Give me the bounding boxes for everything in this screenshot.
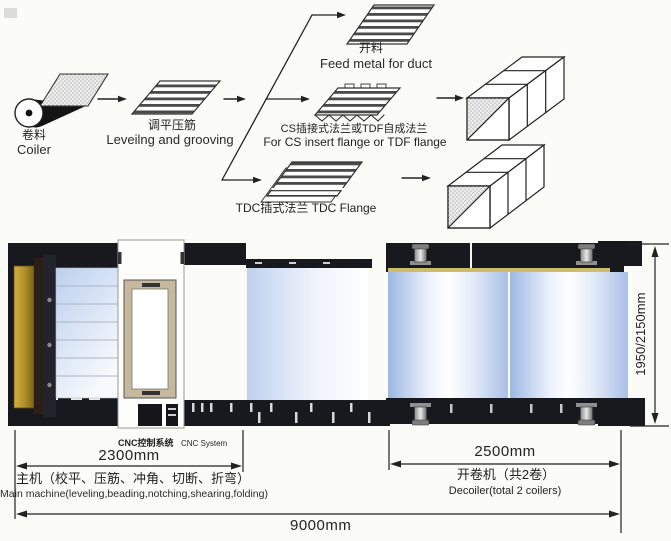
decoiler-coil-1 xyxy=(388,272,508,398)
decoiler-label-en: Decoiler(total 2 coilers) xyxy=(449,485,561,497)
mid-roll-panel xyxy=(247,268,368,400)
coiler-label-en: Coiler xyxy=(17,143,51,157)
scan-artifact xyxy=(4,8,17,18)
leveling-label-zh: 调平压筋 xyxy=(148,119,196,132)
dimension-2500mm: 2500mm xyxy=(474,444,535,461)
cs-flange-label-en: For CS insert flange or TDF flange xyxy=(263,136,446,149)
cnc-control-unit xyxy=(118,240,184,428)
left-table-panel xyxy=(56,268,118,398)
gold-edge-strip xyxy=(388,268,610,272)
flow-arrow-duct-2 xyxy=(402,175,431,181)
cs-flange-label-zh: CS插接式法兰或TDF自成法兰 xyxy=(281,123,428,135)
main-machine-label-en: Main machine(leveling,beading,notching,s… xyxy=(0,489,268,501)
flow-arrow-2 xyxy=(224,96,246,102)
cs-flange-sheet-graphic xyxy=(315,84,400,121)
dimension-height-1950-2150mm: 1950/2150mm xyxy=(634,269,648,399)
coiler-graphic xyxy=(15,74,108,127)
tdc-flange-sheet-graphic xyxy=(261,162,362,202)
decoiler-label-zh: 开卷机（共2卷） xyxy=(457,468,555,482)
flow-arrow-duct-1 xyxy=(437,95,464,101)
cnc-system-label-en: CNC System xyxy=(181,439,227,448)
frame-seam xyxy=(470,243,472,272)
brochure-diagram-page: 卷料 Coiler 调平压筋 Leveilng and grooving 开料 … xyxy=(0,0,671,541)
flow-arrow-1 xyxy=(98,96,127,102)
process-flow-diagram xyxy=(15,5,564,228)
coiler-label-zh: 卷料 xyxy=(22,129,46,142)
duct-assembly-1 xyxy=(467,57,564,140)
bolt-column xyxy=(43,255,56,417)
feed-label-en: Feed metal for duct xyxy=(320,57,432,71)
decoiler-coil-2 xyxy=(510,272,628,398)
duct-assembly-2 xyxy=(448,145,544,228)
feed-sheet-graphic xyxy=(347,5,434,44)
beam-shadow-strip xyxy=(34,258,43,414)
folding-beam-gold-bar xyxy=(14,266,34,408)
dimension-2300mm: 2300mm xyxy=(98,448,159,465)
dimension-9000mm: 9000mm xyxy=(290,518,351,535)
leveling-sheet-graphic xyxy=(132,81,220,114)
feed-label-zh: 开料 xyxy=(359,42,383,55)
leveling-label-en: Leveilng and grooving xyxy=(106,133,233,147)
tdc-flange-label: TDC插式法兰 TDC Flange xyxy=(236,202,377,215)
main-machine-label-zh: 主机（校平、压筋、冲角、切断、折弯） xyxy=(16,472,250,486)
